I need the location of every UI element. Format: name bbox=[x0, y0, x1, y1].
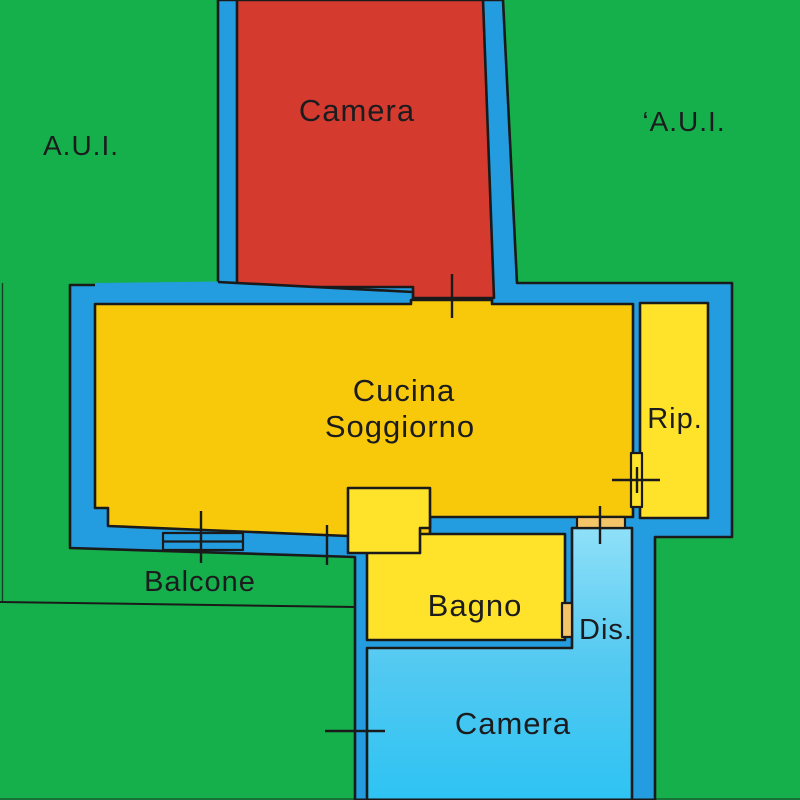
floor-plan-svg: A.U.I. ‘A.U.I. Camera Cucina Soggiorno R… bbox=[0, 0, 800, 800]
label-balcone: Balcone bbox=[144, 566, 256, 598]
label-soggiorno: Soggiorno bbox=[325, 409, 475, 444]
label-rip: Rip. bbox=[647, 403, 703, 435]
floor-plan: A.U.I. ‘A.U.I. Camera Cucina Soggiorno R… bbox=[0, 0, 800, 800]
label-cucina: Cucina bbox=[353, 373, 456, 408]
label-dis: Dis. bbox=[579, 614, 633, 646]
label-camera-top: Camera bbox=[299, 93, 415, 128]
label-aui-right: ‘A.U.I. bbox=[642, 106, 725, 137]
room-camera-top bbox=[237, 0, 494, 298]
label-bagno: Bagno bbox=[428, 588, 523, 623]
label-camera-bottom: Camera bbox=[455, 706, 571, 741]
annex-box bbox=[348, 488, 430, 553]
label-aui-left: A.U.I. bbox=[43, 130, 119, 161]
door-bagno-dis bbox=[562, 603, 572, 637]
